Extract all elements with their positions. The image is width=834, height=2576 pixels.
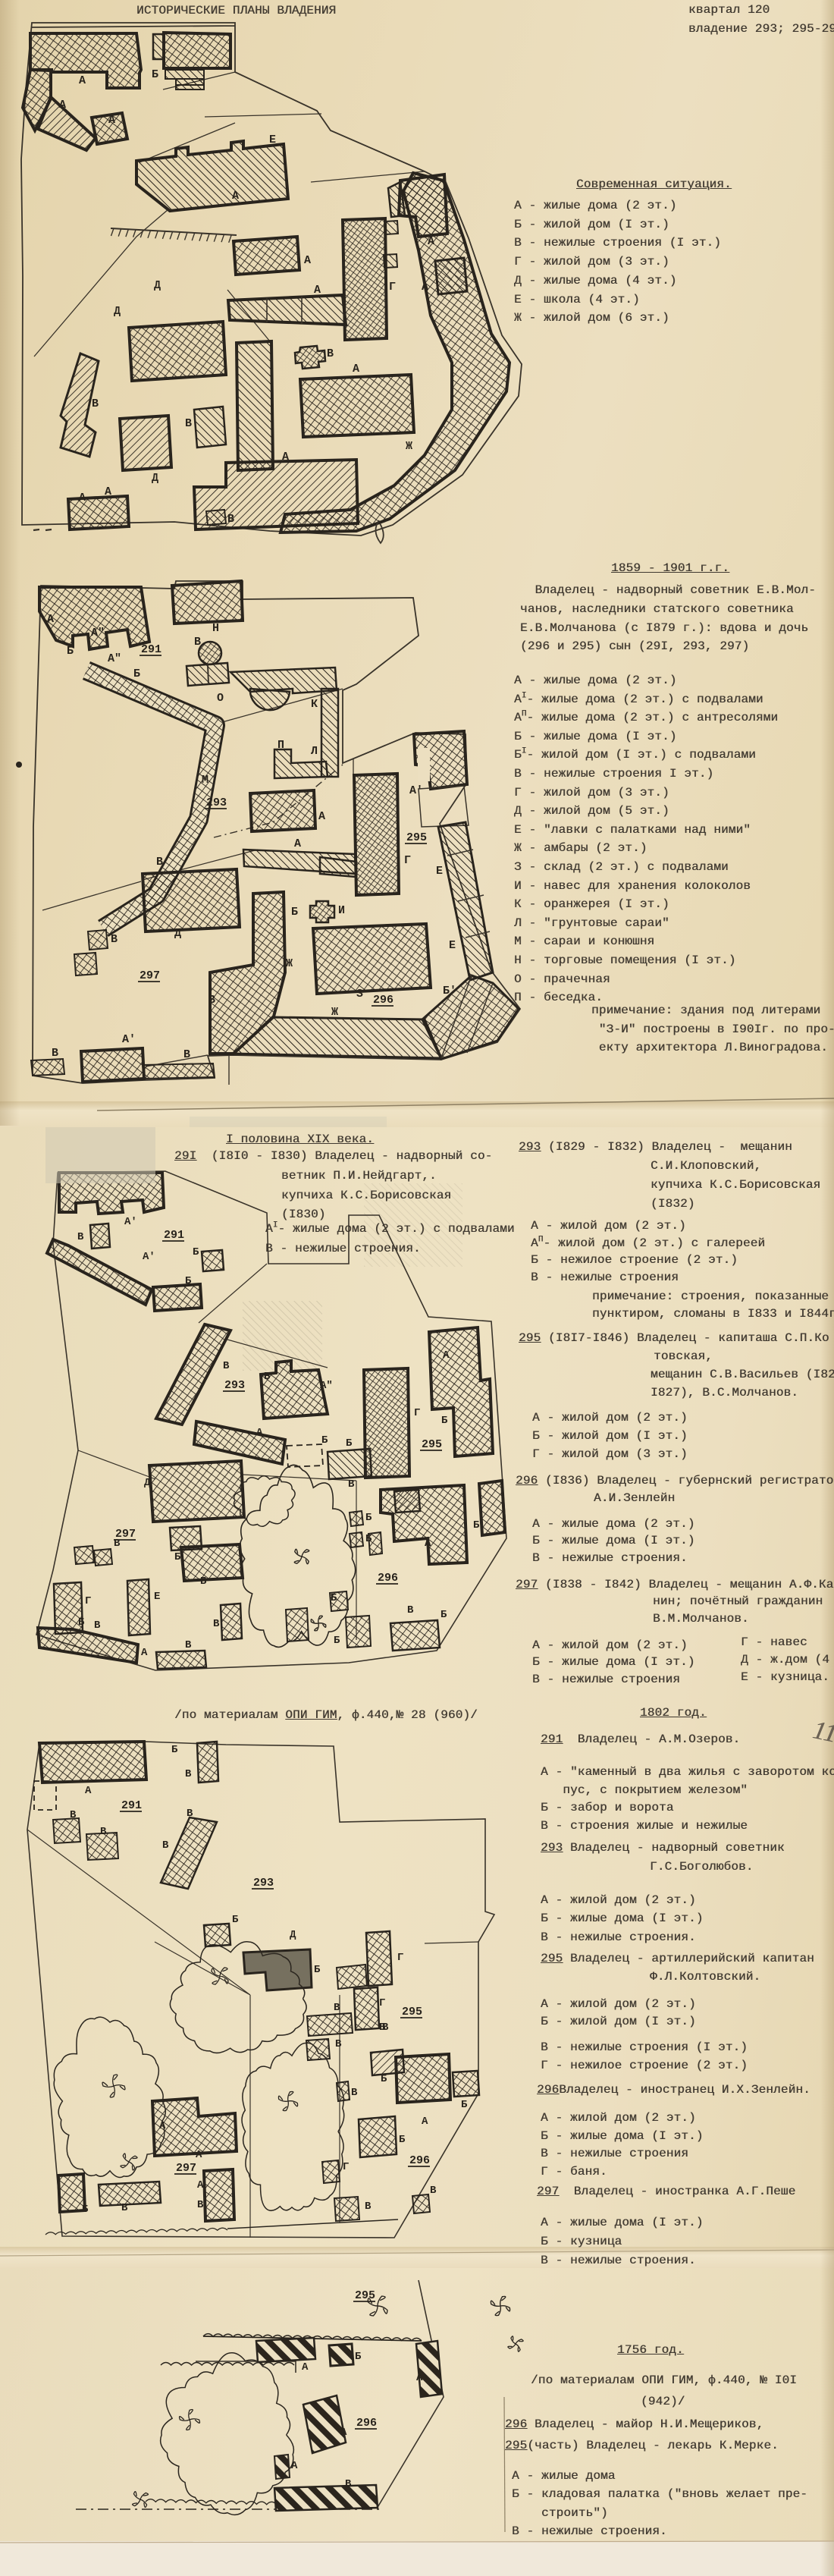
svg-text:Н: Н [212,622,219,635]
svg-text:Д: Д [290,1929,296,1941]
svg-text:В: В [430,2185,437,2197]
svg-text:Ж: Ж [286,957,293,970]
svg-text:В: В [227,513,234,526]
svg-text:Д: Д [174,927,181,940]
svg-text:Г: Г [397,1952,403,1964]
svg-text:Е: Е [449,939,456,952]
svg-text:А: А [422,281,428,294]
svg-text:В: В [197,2199,204,2211]
svg-text:Г: Г [379,1997,385,2009]
svg-text:Г: Г [389,281,396,294]
svg-text:П: П [277,739,284,752]
svg-text:297: 297 [140,969,160,982]
svg-text:293: 293 [206,796,227,809]
svg-text:А: А [85,1785,92,1797]
svg-text:А: А [425,1538,431,1550]
svg-text:Б: Б [264,1371,271,1383]
svg-text:А: А [256,1427,263,1439]
svg-text:Ж: Ж [331,1006,338,1019]
svg-text:В: В [121,2202,128,2214]
svg-text:Б: Б [200,1575,207,1588]
svg-text:В: В [185,1639,192,1651]
svg-text:296: 296 [373,994,393,1007]
svg-text:А: А [105,485,111,498]
svg-text:И: И [338,904,345,917]
svg-text:А: А [291,2460,298,2472]
svg-text:А″: А″ [108,652,121,665]
svg-text:В: В [185,1768,192,1780]
svg-text:297: 297 [176,2162,196,2175]
svg-text:А': А' [409,784,423,797]
svg-text:В: В [345,2478,352,2490]
svg-text:293: 293 [253,1877,274,1890]
svg-text:Г: Г [343,2161,349,2173]
svg-text:А: А [79,74,86,87]
svg-text:Б: Б [152,68,158,81]
svg-text:В: В [335,2038,342,2050]
svg-text:Б: Б [185,1275,192,1287]
svg-text:295: 295 [406,831,427,844]
svg-text:296: 296 [409,2154,430,2167]
svg-text:А: А [416,2372,423,2384]
svg-text:293: 293 [224,1379,245,1392]
svg-text:В: В [327,347,334,360]
svg-text:Ж: Ж [406,440,412,453]
svg-text:Б: Б [331,1592,337,1604]
svg-text:А: А [318,810,325,823]
svg-text:В: В [77,1231,84,1243]
svg-text:А: А [422,2116,428,2128]
svg-text:Б: Б [441,1609,447,1621]
svg-text:А: А [282,451,289,463]
svg-text:В: В [94,1619,101,1632]
svg-text:Б: Б [334,1635,340,1647]
svg-text:Е: Е [269,134,276,146]
svg-text:Г: Г [85,1595,91,1607]
svg-text:А: А [353,363,359,375]
svg-text:В: В [194,636,201,649]
svg-text:В: В [156,856,163,869]
svg-text:291: 291 [121,1799,142,1812]
svg-text:Е: Е [436,865,443,878]
svg-text:Д: Д [154,279,161,292]
svg-text:В: В [70,1809,77,1821]
svg-text:В: В [52,1047,58,1060]
svg-text:Е: Е [154,1591,160,1603]
svg-text:В: В [351,2087,358,2099]
svg-text:Б: Б [399,2134,406,2146]
svg-text:А: А [294,837,301,850]
svg-text:Б: Б [171,1744,178,1756]
svg-text:М: М [202,774,208,787]
svg-text:Г: Г [414,1407,420,1419]
svg-text:Д: Д [144,1477,151,1489]
svg-text:В: В [187,1808,193,1820]
svg-text:В: В [223,1360,230,1372]
svg-text:В: В [348,1478,355,1491]
svg-text:В: В [208,994,215,1007]
svg-text:В: В [162,1839,169,1852]
svg-text:Б': Б' [443,985,456,997]
svg-text:Б: Б [193,1246,199,1258]
svg-text:А: А [302,2361,309,2373]
svg-text:К: К [311,698,318,711]
svg-text:Д: Д [114,305,121,318]
svg-text:Б: Б [78,1616,85,1629]
svg-text:Б: Б [355,2351,362,2363]
svg-text:А': А' [124,1216,137,1228]
svg-text:Б: Б [441,1415,448,1427]
svg-text:Б: Б [365,1512,372,1524]
svg-text:А: А [443,1349,450,1362]
svg-text:А: А [197,2179,204,2191]
svg-text:А: А [141,1647,148,1659]
svg-text:В: В [365,2201,372,2213]
svg-text:Б: Б [346,1437,353,1450]
svg-text:291: 291 [141,643,161,656]
svg-text:В: В [183,1048,190,1061]
svg-text:295: 295 [402,2006,422,2018]
svg-text:А″: А″ [91,627,105,639]
svg-text:295: 295 [355,2289,375,2302]
svg-text:А: А [232,190,239,203]
svg-text:А': А' [143,1251,155,1263]
svg-text:Д: Д [152,472,158,485]
svg-text:295: 295 [422,1438,442,1451]
svg-text:В: В [407,1604,414,1616]
svg-text:Б: Б [321,1434,328,1447]
svg-text:Б: Б [174,1551,181,1563]
svg-text:Г: Г [404,854,411,867]
svg-text:А': А' [122,1033,136,1046]
svg-text:Б: Б [133,668,140,680]
svg-text:В: В [213,1618,220,1630]
svg-text:Л: Л [311,745,318,758]
svg-text:Б: Б [365,1533,372,1545]
svg-text:А: А [340,2427,347,2439]
svg-text:Б: Б [291,906,298,919]
svg-text:О: О [217,692,224,705]
svg-text:В: В [382,2022,389,2034]
svg-text:В: В [334,2002,340,2014]
svg-text:Б: Б [232,1914,239,1926]
svg-text:А: А [59,99,66,112]
svg-text:А: А [79,492,86,504]
svg-text:В: В [92,397,99,410]
svg-text:А: А [196,2149,202,2161]
svg-text:А: А [47,613,54,626]
svg-text:Б: Б [381,2073,387,2085]
svg-text:Б: Б [473,1519,480,1531]
svg-text:А: А [314,284,321,297]
svg-text:Б: Б [67,645,74,658]
svg-text:А: А [428,235,434,248]
svg-text:А: А [108,114,115,127]
svg-text:296: 296 [378,1572,398,1585]
svg-text:Б: Б [82,2204,89,2216]
svg-text:297: 297 [115,1528,136,1541]
svg-text:А: А [304,254,311,267]
svg-text:В: В [185,417,192,430]
svg-text:296: 296 [356,2417,377,2430]
svg-text:А″: А″ [320,1380,333,1392]
svg-text:Б: Б [314,1964,321,1976]
svg-text:З: З [356,988,363,1001]
svg-text:В: В [111,933,118,946]
svg-text:А: А [159,2120,166,2132]
svg-text:Б: Б [461,2099,468,2111]
svg-text:291: 291 [164,1229,184,1242]
svg-text:В: В [100,1826,107,1838]
